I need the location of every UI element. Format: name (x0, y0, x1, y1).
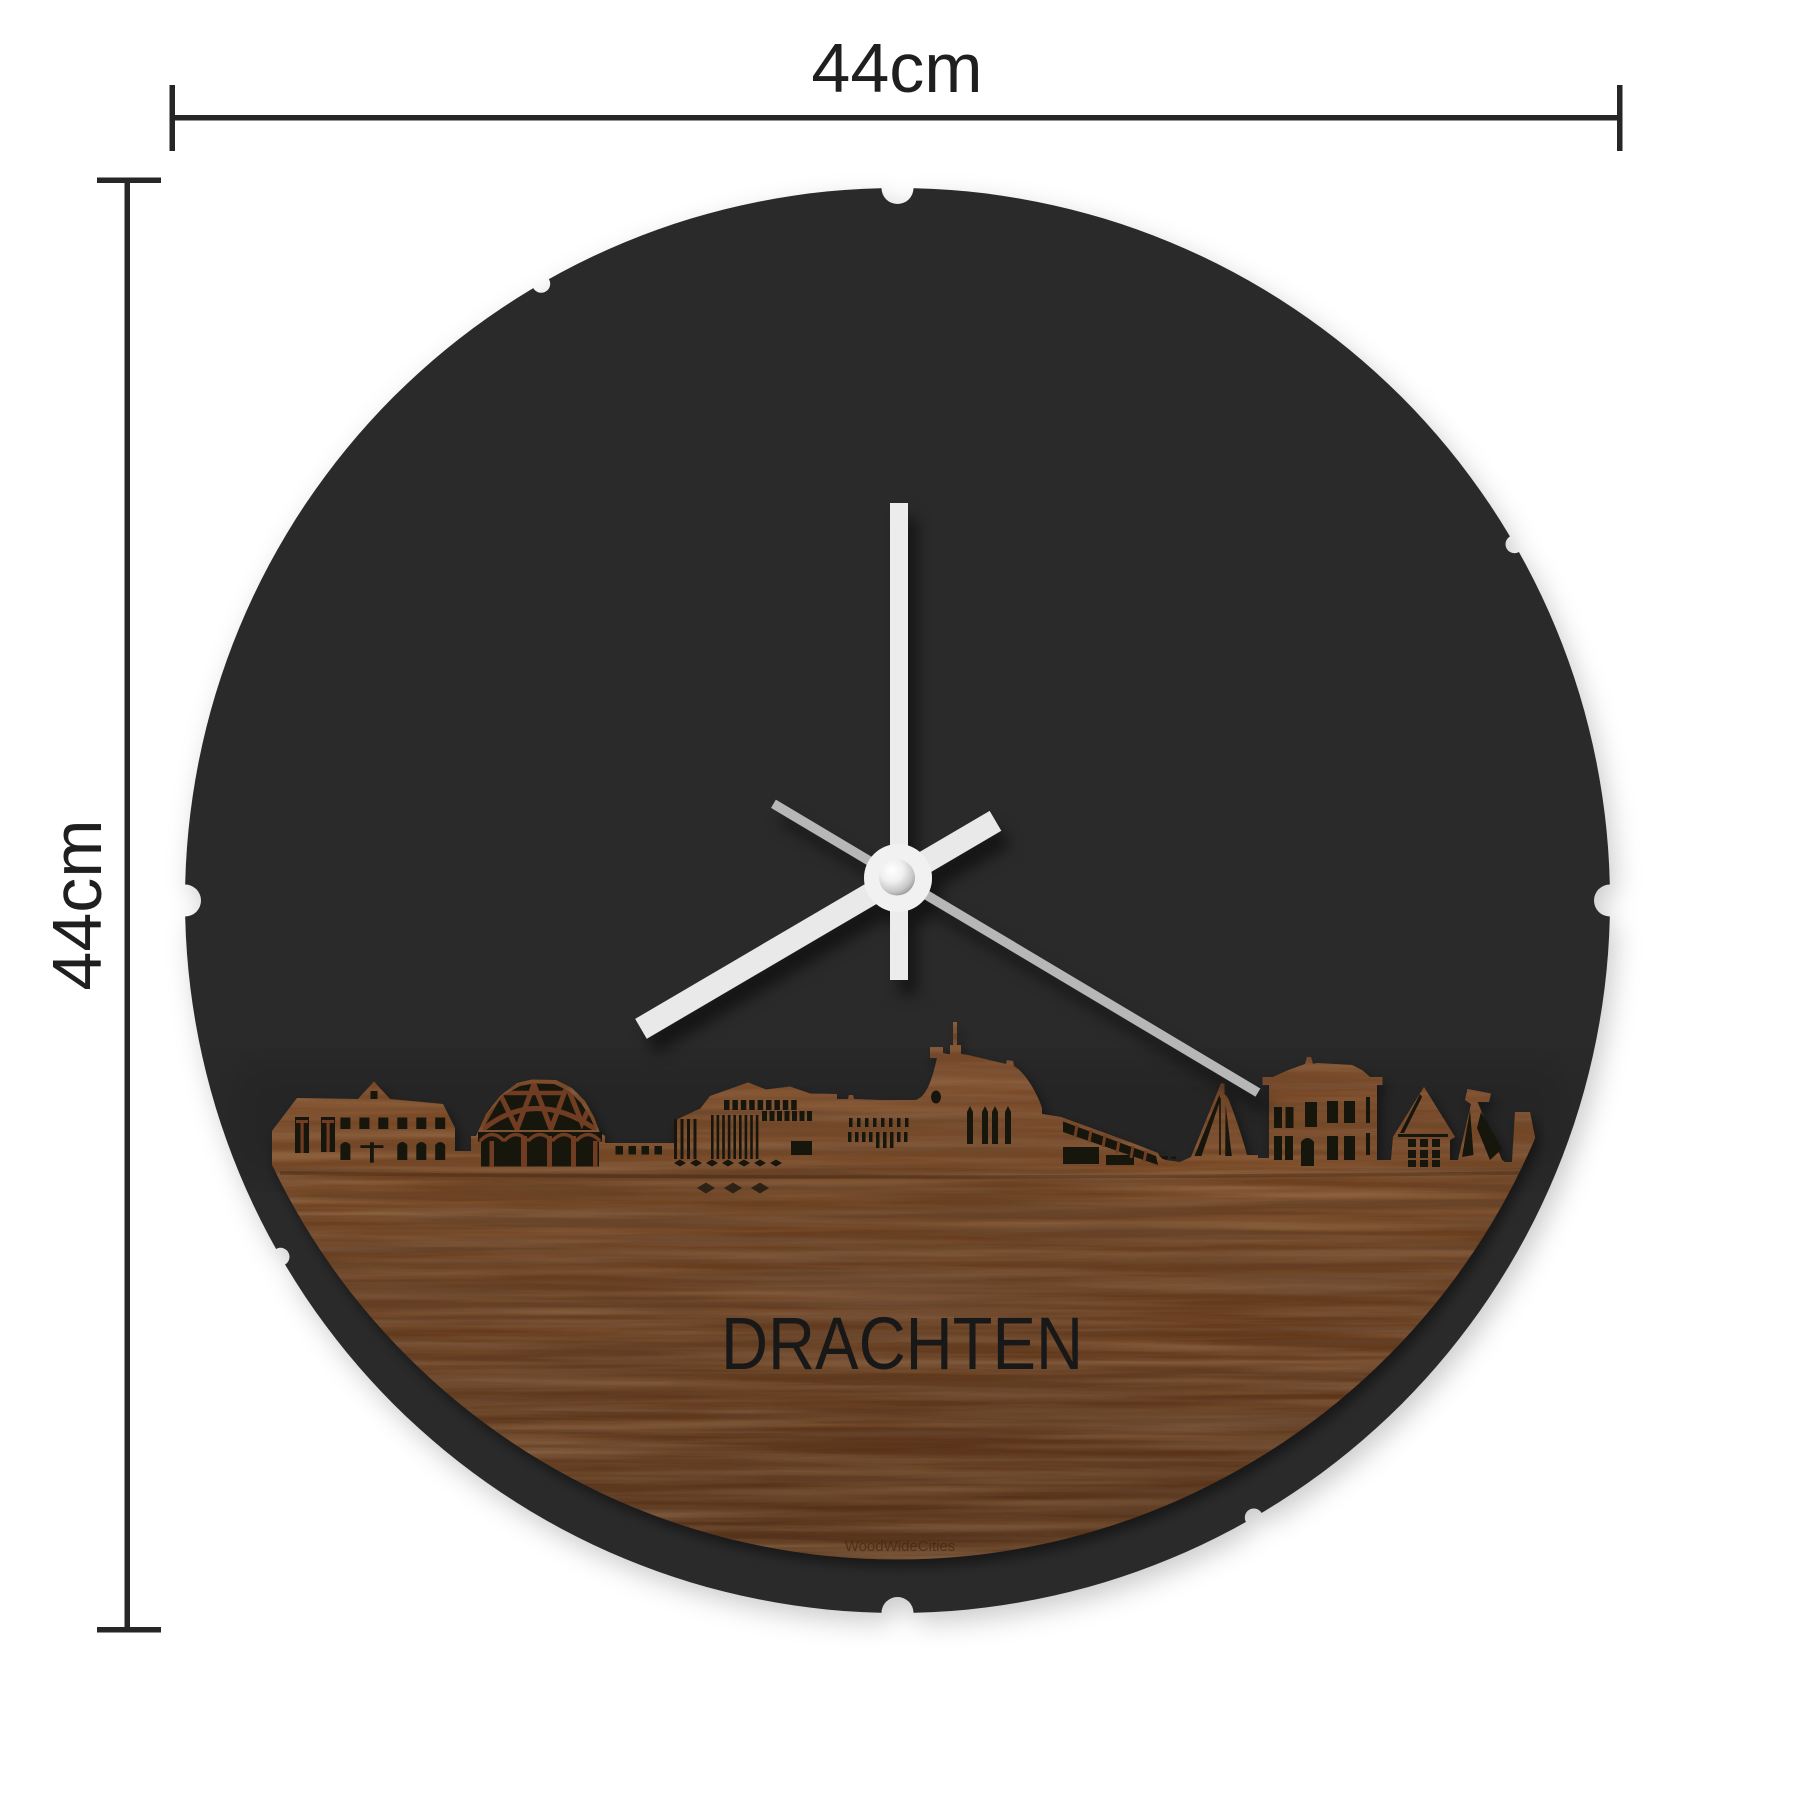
svg-text:DRACHTEN: DRACHTEN (721, 1302, 1083, 1385)
svg-text:44cm: 44cm (38, 819, 116, 990)
svg-text:44cm: 44cm (811, 29, 982, 107)
svg-text:WoodWideCities: WoodWideCities (845, 1538, 956, 1555)
